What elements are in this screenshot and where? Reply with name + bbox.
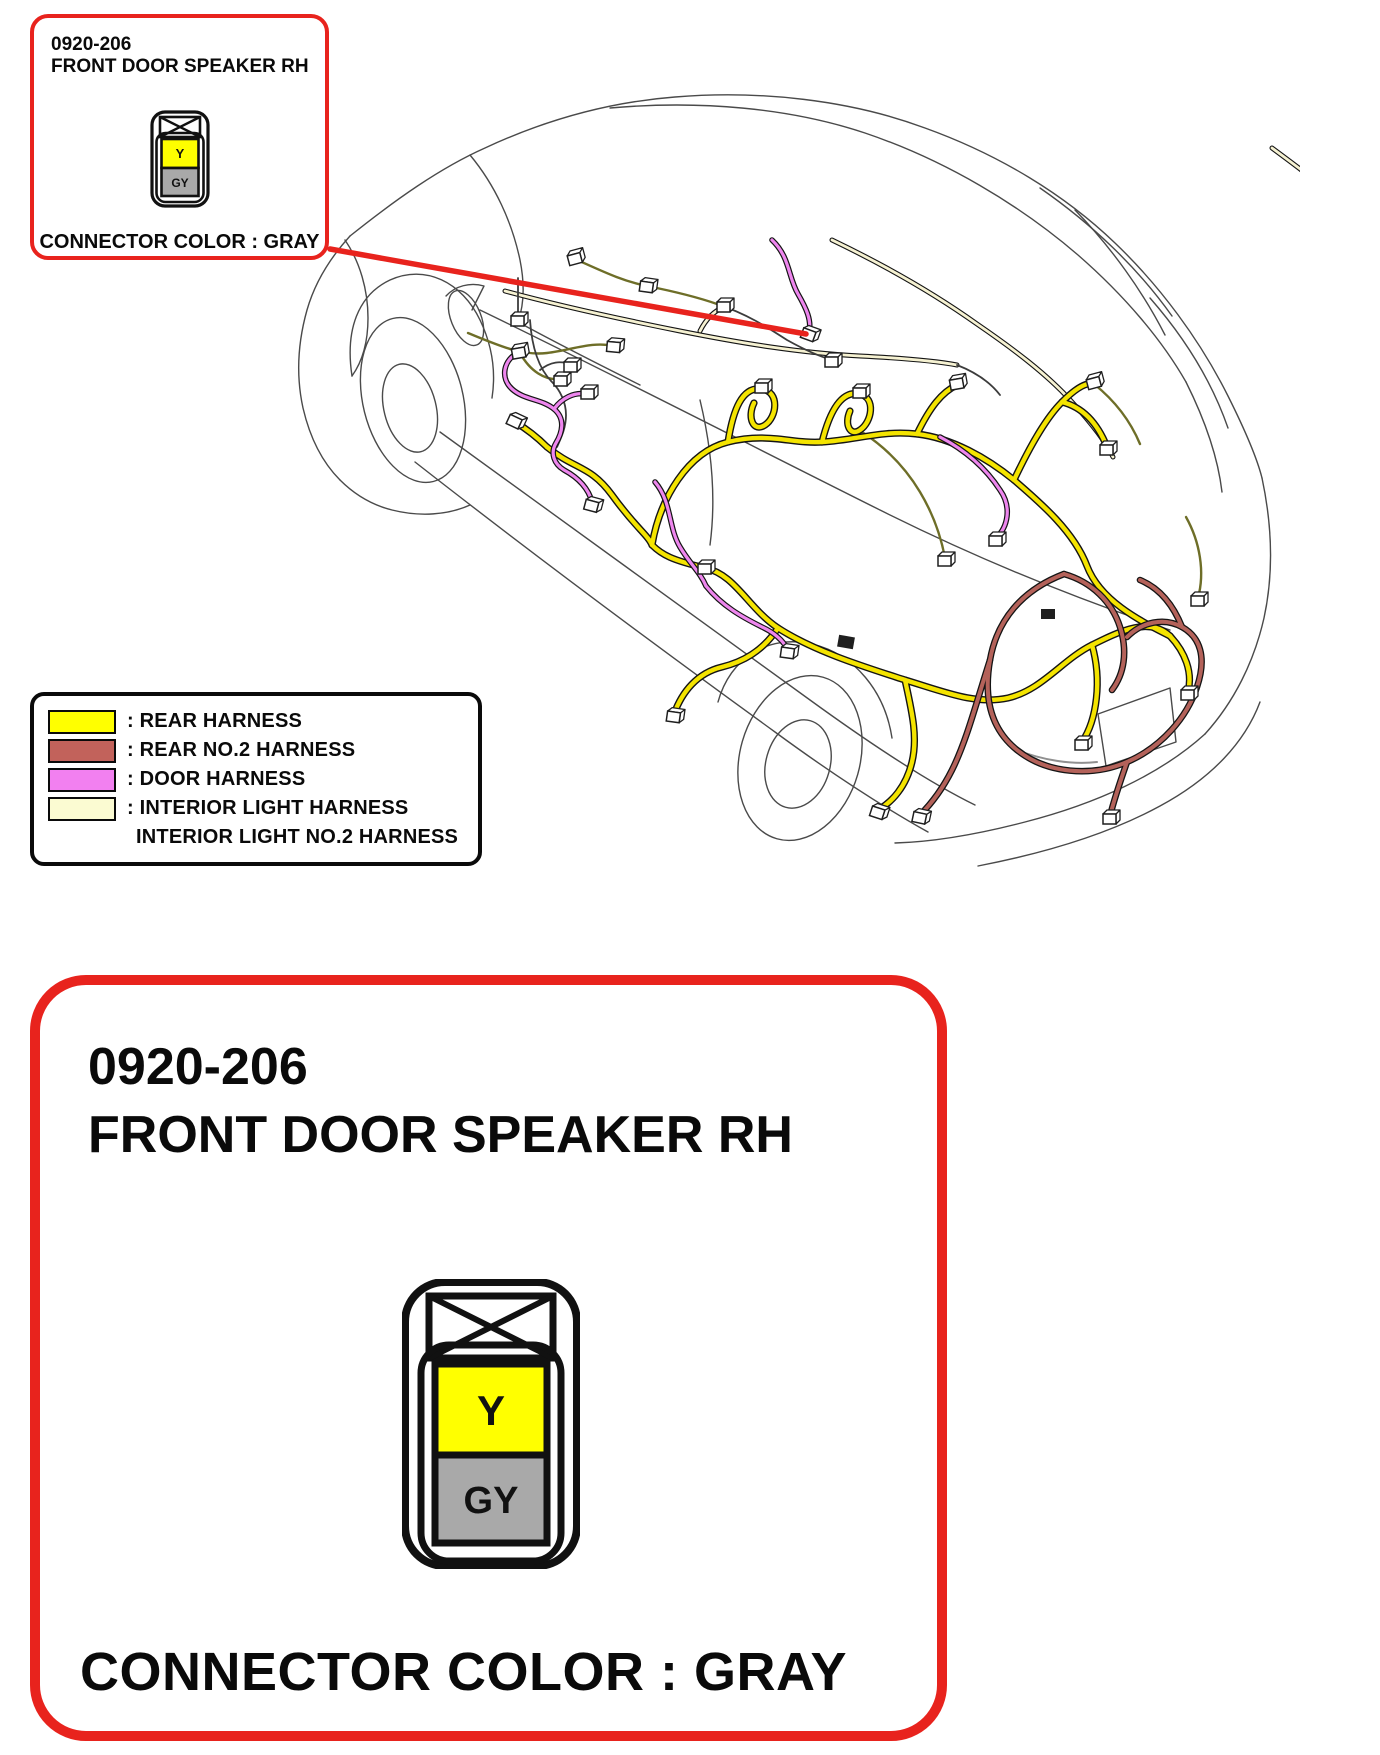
detail-part-name: FRONT DOOR SPEAKER RH [88,1105,793,1165]
connector-box-icon [853,384,870,398]
connector-box-icon [989,532,1006,546]
harness-legend: : REAR HARNESS : REAR NO.2 HARNESS : DOO… [30,692,482,866]
cavity-y-label: Y [176,146,185,161]
connector-box-icon [717,298,734,312]
detail-part-number: 0920-206 [88,1037,308,1097]
connector-box-icon [1085,372,1105,390]
connector-box-icon [825,353,842,367]
connector-pinout-icon: Y GY [150,110,210,208]
detail-connector-color-note: CONNECTOR COLOR : GRAY [80,1641,847,1703]
connector-box-icon [949,373,968,390]
connector-box-icon [1103,810,1120,824]
callout-part-name: FRONT DOOR SPEAKER RH [51,56,309,78]
callout-connector-color-note: CONNECTOR COLOR : GRAY [34,231,325,254]
connector-box-icon [912,808,932,825]
callout-part-number: 0920-206 [51,34,131,56]
cavity-gy-label: GY [171,176,188,190]
legend-row: INTERIOR LIGHT NO.2 HARNESS [48,823,478,852]
connector-box-icon [1181,686,1198,700]
connector-box-icon [1191,592,1208,606]
connector-pinout-icon-large: Y GY [402,1279,580,1569]
legend-swatch-rear-no2-harness [48,739,116,763]
legend-label: : INTERIOR LIGHT HARNESS [127,797,408,820]
legend-swatch-rear-harness [48,710,116,734]
legend-row: : DOOR HARNESS [48,765,478,794]
connector-box-icon [780,643,799,659]
legend-label: : REAR NO.2 HARNESS [127,739,355,762]
legend-row: : INTERIOR LIGHT HARNESS [48,794,478,823]
connector-box-icon [938,552,955,566]
connector-box-icon [554,372,571,386]
connector-box-icon [1075,736,1092,750]
connector-box-icon [698,560,715,574]
relay-box-icon [1041,609,1055,619]
connector-box-icon [755,379,772,393]
connector-box-icon [511,312,528,326]
legend-label: : DOOR HARNESS [127,768,305,791]
connector-box-icon [581,385,598,399]
connector-box-icon [666,707,685,723]
connector-box-icon [584,495,604,513]
connector-box-icon [511,342,530,359]
legend-row: : REAR NO.2 HARNESS [48,736,478,765]
callout-box: 0920-206 FRONT DOOR SPEAKER RH Y GY CONN… [30,14,329,260]
connector-box-icon [639,277,658,293]
connector-box-icon [1100,441,1117,455]
legend-swatch-interior-light-harness [48,797,116,821]
relay-box-icon [837,635,855,650]
connector-box-icon [564,358,581,372]
connector-box-icon [607,337,625,352]
cavity-y-label: Y [477,1387,505,1434]
legend-row: : REAR HARNESS [48,707,478,736]
cavity-gy-label: GY [464,1480,519,1522]
legend-label: INTERIOR LIGHT NO.2 HARNESS [136,826,458,849]
legend-label: : REAR HARNESS [127,710,302,733]
legend-swatch-door-harness [48,768,116,792]
connector-detail-box: 0920-206 FRONT DOOR SPEAKER RH Y GY CONN… [30,975,947,1741]
